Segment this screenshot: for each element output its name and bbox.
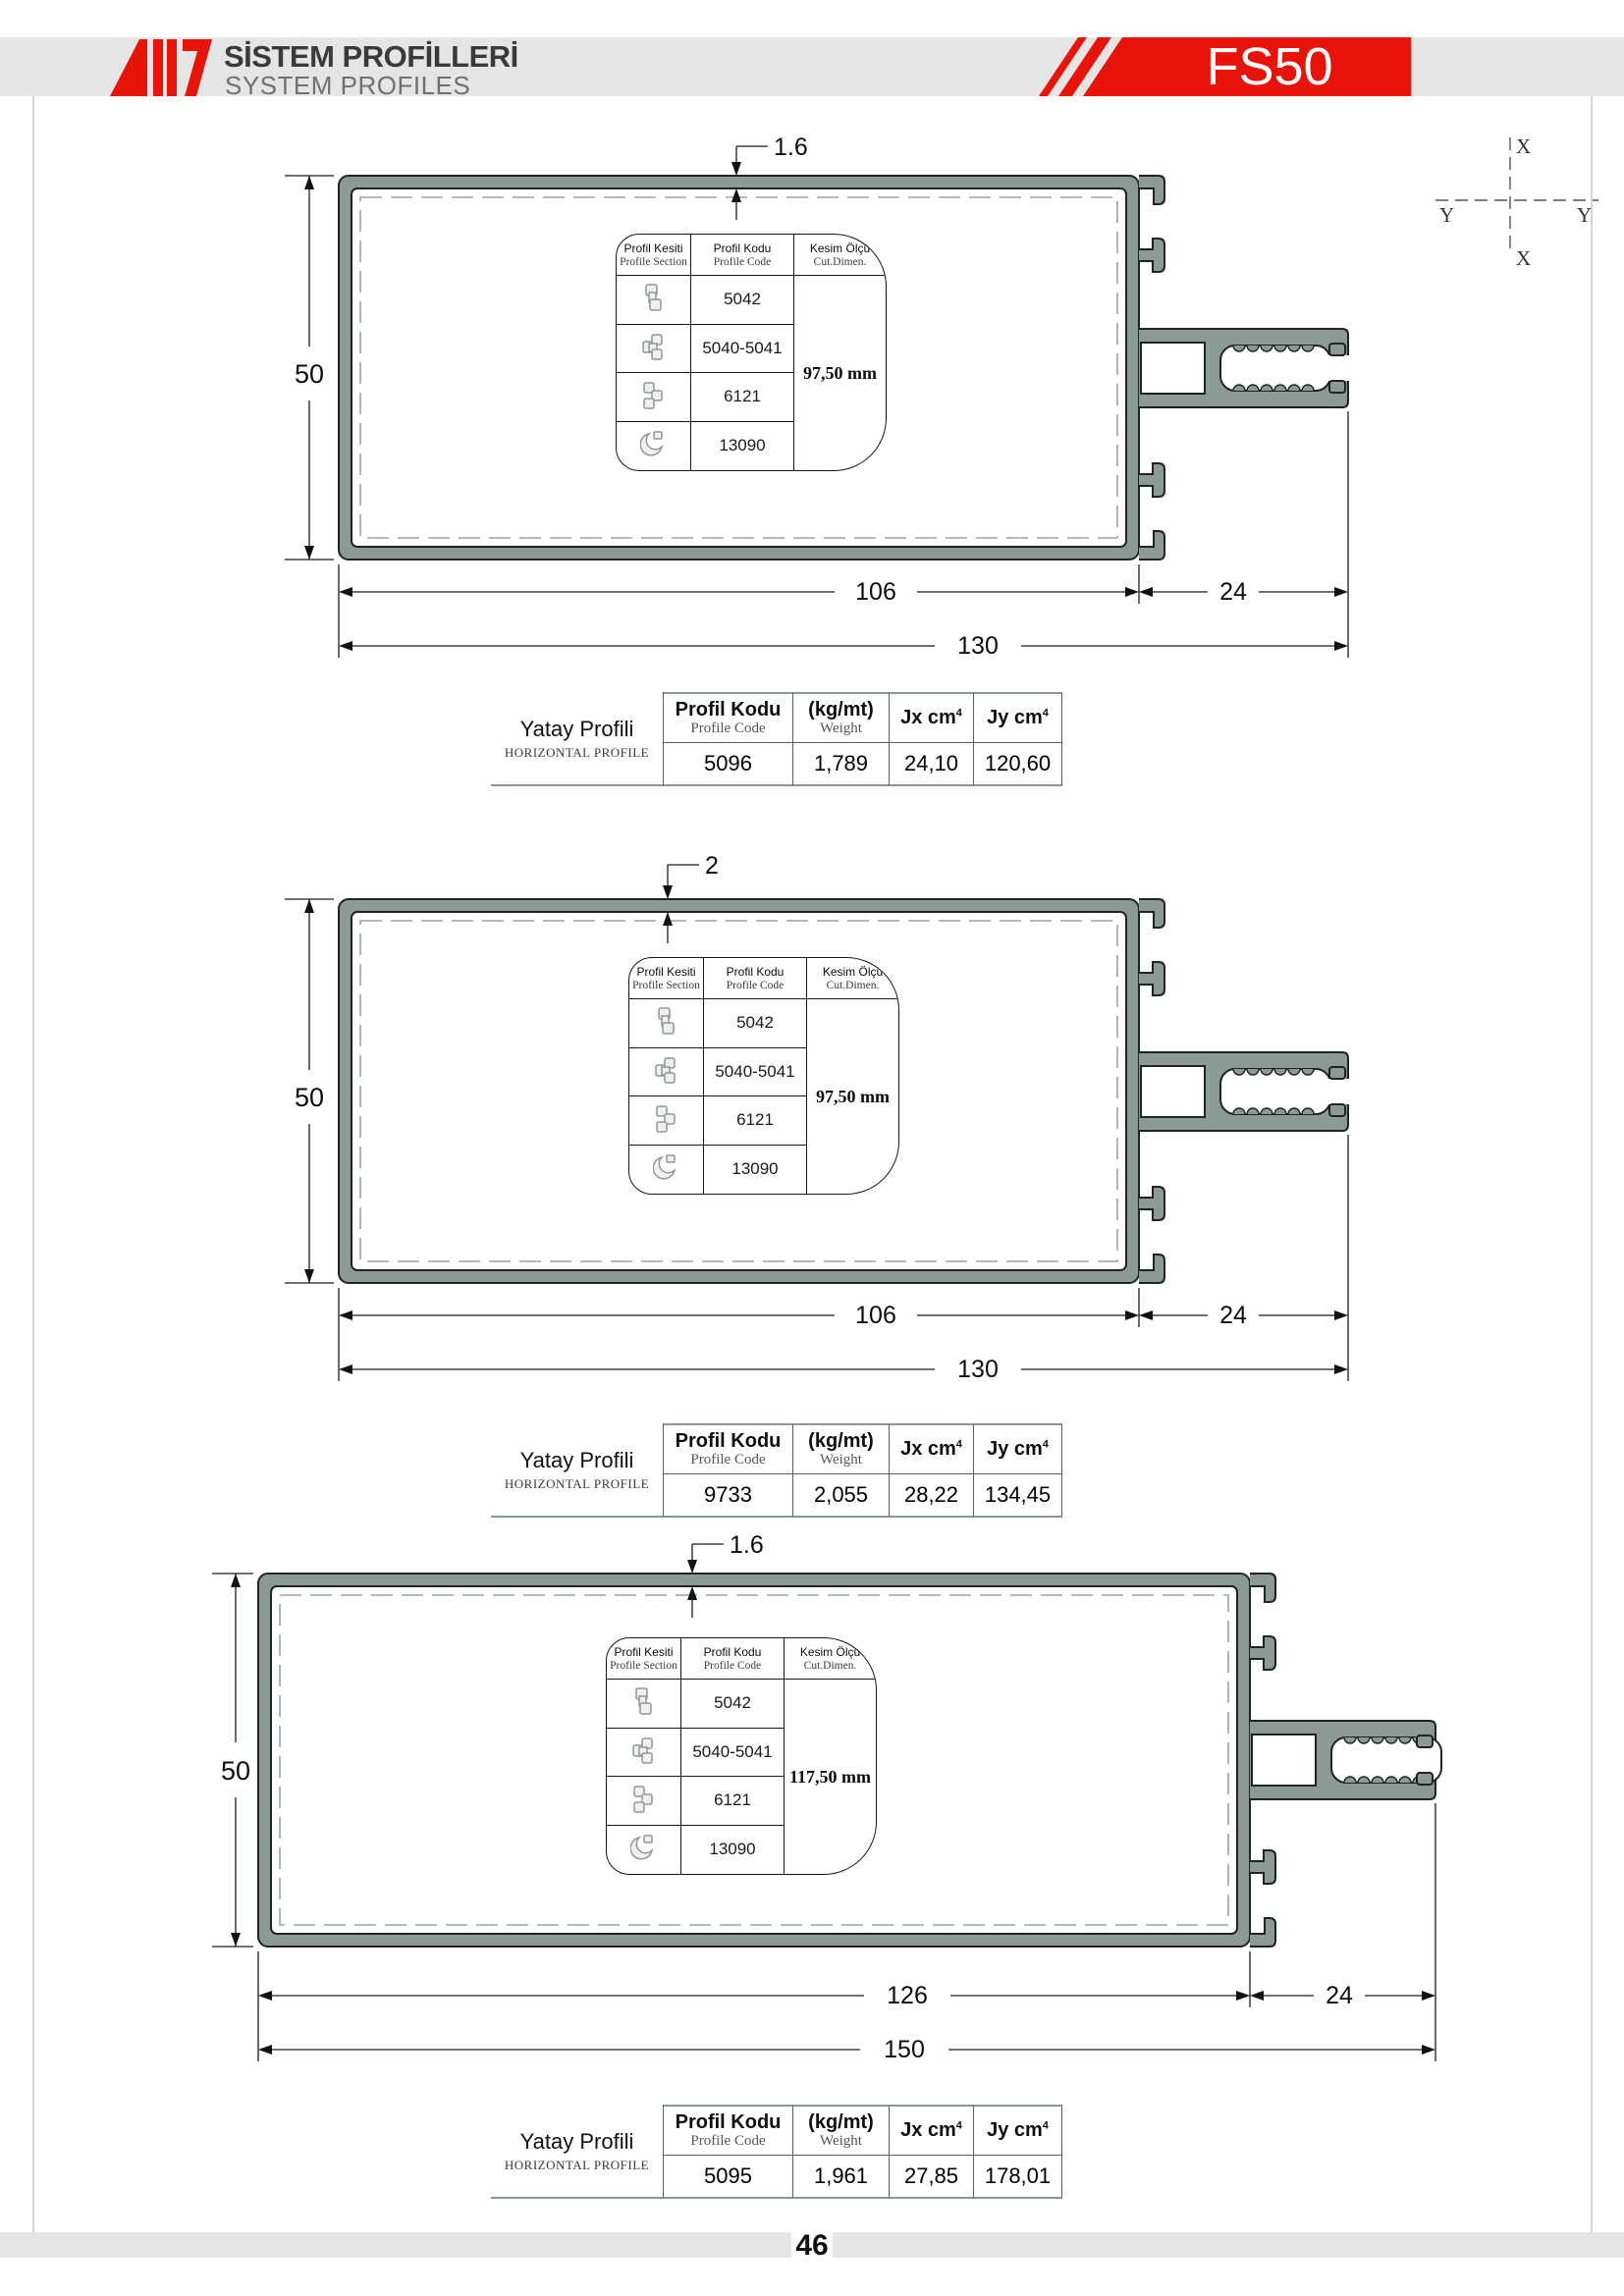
axis-x-top-label: X bbox=[1516, 134, 1531, 158]
dim-height-label: 50 bbox=[295, 1083, 324, 1112]
col-header-jy: Jy cm4 bbox=[974, 2105, 1062, 2156]
clip-icon bbox=[607, 1680, 681, 1729]
card-header-profile-code: Profil Kodu Profile Code bbox=[691, 235, 794, 276]
profile-code-cell: 13090 bbox=[681, 1826, 785, 1875]
value-weight: 1,789 bbox=[793, 743, 890, 786]
col-header-profile-code: Profil KoduProfile Code bbox=[664, 692, 793, 743]
footer-bar-left bbox=[0, 2232, 791, 2258]
page-number: 46 bbox=[791, 2229, 833, 2263]
dim-outer-width-label: 130 bbox=[957, 1356, 999, 1383]
axis-x-bottom-label: X bbox=[1516, 246, 1531, 270]
cut-dimension-value: 117,50 mm bbox=[785, 1680, 876, 1874]
cut-info-card-3: Profil KesitiProfile Section Profil Kodu… bbox=[606, 1637, 877, 1875]
clip-icon bbox=[629, 1096, 704, 1146]
clip-icon bbox=[617, 422, 691, 471]
dim-height-label: 50 bbox=[295, 359, 324, 389]
col-header-weight: (kg/mt)Weight bbox=[793, 2105, 890, 2156]
col-header-jx: Jx cm4 bbox=[890, 2105, 974, 2156]
dim-thickness-label: 2 bbox=[705, 852, 719, 880]
clip-icon bbox=[629, 1048, 704, 1097]
page-border-left bbox=[32, 96, 34, 2232]
card-header-profile-code: Profil KoduProfile Code bbox=[681, 1638, 785, 1680]
clip-icon bbox=[629, 1146, 704, 1195]
clip-icon bbox=[607, 1826, 681, 1875]
dim-height-label: 50 bbox=[221, 1756, 250, 1786]
value-jy: 178,01 bbox=[974, 2156, 1062, 2199]
cut-info-card-1: Profil Kesiti Profile Section Profil Kod… bbox=[616, 234, 887, 471]
dim-outer-width-label: 150 bbox=[884, 2036, 925, 2063]
cut-info-card-2: Profil KesitiProfile Section Profil Kodu… bbox=[628, 957, 899, 1195]
col-header-weight: (kg/mt)Weight bbox=[793, 1423, 890, 1474]
footer-bar-right bbox=[833, 2232, 1624, 2258]
col-header-weight: (kg/mt)Weight bbox=[793, 692, 890, 743]
value-profile-code: 5095 bbox=[664, 2156, 793, 2199]
card-header-profile-code: Profil KoduProfile Code bbox=[704, 958, 807, 999]
page-border-right bbox=[1591, 96, 1593, 2232]
profile-code-cell: 5042 bbox=[704, 999, 807, 1048]
profile-code-cell: 6121 bbox=[704, 1096, 807, 1146]
cut-dimension-value: 97,50 mm bbox=[807, 999, 898, 1194]
card-header-profile-section: Profil Kesiti Profile Section bbox=[617, 235, 691, 276]
dim-outer-width-label: 130 bbox=[957, 632, 999, 660]
spec-table-3: Yatay Profili HORIZONTAL PROFILE Profil … bbox=[491, 2105, 1062, 2199]
col-header-jy: Jy cm4 bbox=[974, 692, 1062, 743]
col-header-jx: Jx cm4 bbox=[890, 692, 974, 743]
clip-icon bbox=[617, 325, 691, 374]
page-title: SİSTEM PROFİLLERİ bbox=[224, 39, 518, 75]
axis-y-left-label: Y bbox=[1439, 203, 1454, 227]
dim-arm-label: 24 bbox=[1326, 1982, 1353, 2009]
dim-inner-width-label: 126 bbox=[887, 1982, 928, 2009]
value-weight: 1,961 bbox=[793, 2156, 890, 2199]
profile-code-cell: 13090 bbox=[704, 1146, 807, 1195]
value-jx: 24,10 bbox=[890, 743, 974, 786]
col-header-profile-code: Profil KoduProfile Code bbox=[664, 1423, 793, 1474]
profile-code-cell: 5040-5041 bbox=[704, 1048, 807, 1097]
dim-thickness-label: 1.6 bbox=[774, 133, 808, 161]
clip-icon bbox=[629, 999, 704, 1048]
dim-arm-label: 24 bbox=[1219, 1302, 1247, 1329]
col-header-profile-code: Profil KoduProfile Code bbox=[664, 2105, 793, 2156]
profile-code-cell: 5040-5041 bbox=[681, 1729, 785, 1778]
dim-inner-width-label: 106 bbox=[855, 578, 896, 606]
profile-code-cell: 6121 bbox=[681, 1777, 785, 1826]
value-jy: 120,60 bbox=[974, 743, 1062, 786]
col-header-jy: Jy cm4 bbox=[974, 1423, 1062, 1474]
profile-code-cell: 5042 bbox=[691, 276, 794, 325]
profile-code-cell: 5042 bbox=[681, 1680, 785, 1729]
profile-code-cell: 13090 bbox=[691, 422, 794, 471]
table-row-header: Yatay Profili HORIZONTAL PROFILE bbox=[491, 2105, 664, 2199]
dim-inner-width-label: 106 bbox=[855, 1302, 896, 1329]
col-header-jx: Jx cm4 bbox=[890, 1423, 974, 1474]
axis-y-right-label: Y bbox=[1577, 203, 1592, 227]
dim-thickness-label: 1.6 bbox=[730, 1531, 764, 1559]
value-profile-code: 5096 bbox=[664, 743, 793, 786]
cut-dimension-value: 97,50 mm bbox=[794, 276, 886, 470]
clip-icon bbox=[617, 276, 691, 325]
table-row-header: Yatay Profili HORIZONTAL PROFILE bbox=[491, 692, 664, 786]
value-jx: 27,85 bbox=[890, 2156, 974, 2199]
profile-code-cell: 5040-5041 bbox=[691, 325, 794, 374]
card-header-profile-section: Profil KesitiProfile Section bbox=[607, 1638, 681, 1680]
clip-icon bbox=[607, 1729, 681, 1778]
spec-table-1: Yatay Profili HORIZONTAL PROFILE Profil … bbox=[491, 692, 1062, 786]
clip-icon bbox=[607, 1777, 681, 1826]
profile-code-cell: 6121 bbox=[691, 373, 794, 422]
clip-icon bbox=[617, 373, 691, 422]
card-header-profile-section: Profil KesitiProfile Section bbox=[629, 958, 704, 999]
dim-arm-label: 24 bbox=[1219, 578, 1247, 606]
axis-indicator: X X Y Y bbox=[1424, 124, 1620, 271]
